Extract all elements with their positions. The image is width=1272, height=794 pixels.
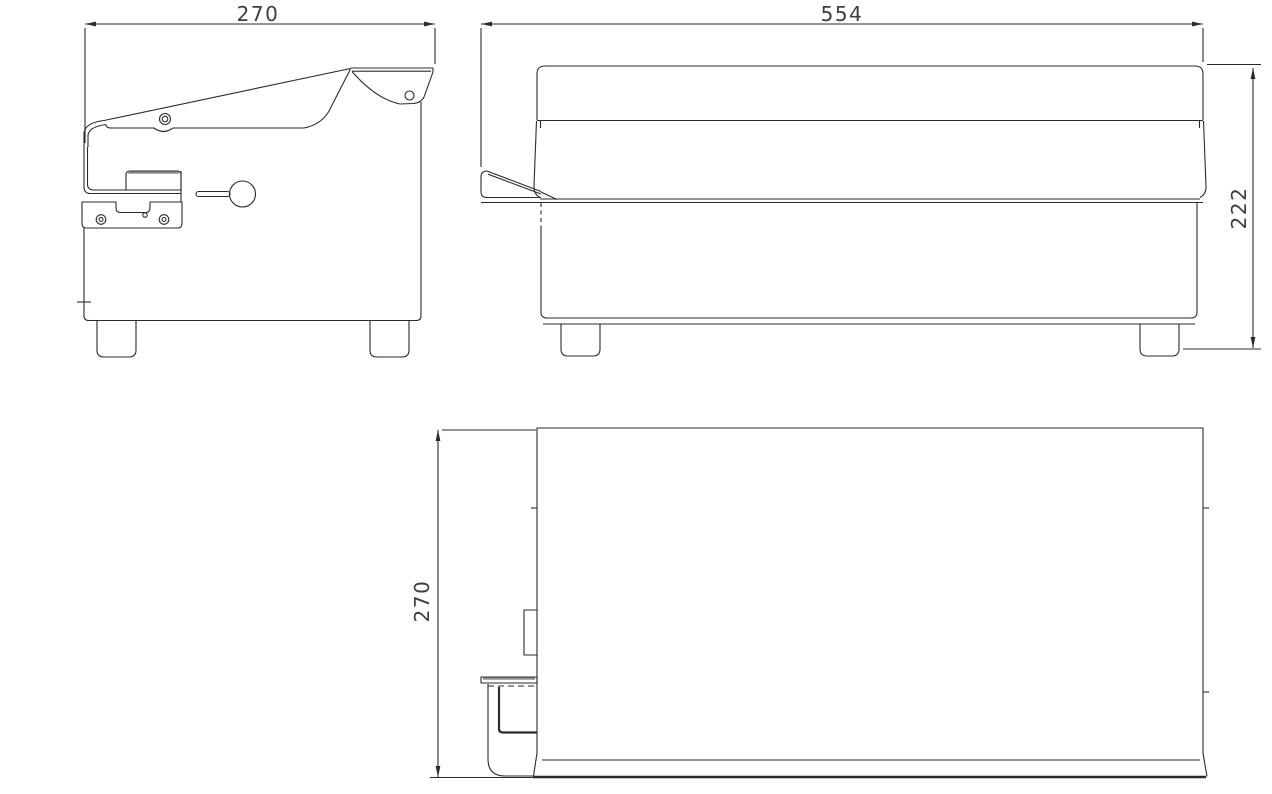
body-outline	[84, 102, 421, 321]
arrowhead-right-icon	[1192, 22, 1203, 27]
handle-knob	[230, 181, 256, 207]
drawing-sheet: 270	[0, 0, 1272, 794]
handle-bracket-arm	[487, 171, 541, 192]
screw-head	[96, 215, 106, 225]
arrowhead-up-icon	[1251, 68, 1256, 79]
pin-hole	[143, 213, 147, 217]
dimension-side-width: 270	[85, 2, 435, 143]
lid-lower-right-edge	[1200, 121, 1206, 198]
strip-right-edge	[1203, 753, 1207, 777]
arrowhead-right-icon	[424, 22, 435, 27]
mounting-plate	[82, 202, 182, 228]
foot	[1140, 324, 1179, 356]
side-notch	[524, 610, 537, 655]
technical-drawing-canvas: 270	[0, 0, 1272, 794]
body-outline	[541, 203, 1197, 318]
top-view: 270	[410, 428, 1209, 778]
screw-head-inner	[162, 116, 168, 122]
dimension-label: 270	[237, 2, 280, 26]
hinge-bracket-curve	[352, 72, 400, 105]
clamp-tab	[126, 171, 181, 190]
arrowhead-down-icon	[1251, 337, 1256, 348]
dimension-label: 270	[410, 580, 434, 623]
lid-lower-left-edge	[534, 121, 540, 198]
screw-head-inner	[162, 218, 166, 222]
arrowhead-down-icon	[436, 766, 441, 777]
lid-inner-corner	[88, 125, 106, 148]
tray-inner-wall	[499, 687, 537, 733]
foot	[561, 324, 600, 356]
lid-upper-box	[537, 66, 1203, 120]
screw-head	[160, 114, 171, 125]
lid-underside	[106, 69, 351, 132]
front-edge-outer	[84, 147, 181, 194]
arrowhead-left-icon	[481, 22, 492, 27]
arrowhead-left-icon	[85, 22, 96, 27]
handle-bracket-tail	[541, 192, 557, 200]
dimension-label: 554	[821, 2, 864, 26]
dimension-top-depth: 270	[410, 430, 542, 778]
handle-rod	[196, 192, 230, 197]
dimension-label: 222	[1227, 187, 1251, 230]
foot	[97, 321, 136, 357]
dimension-front-height: 222	[1183, 65, 1261, 350]
arrowhead-up-icon	[436, 430, 441, 441]
screw-head	[159, 215, 169, 225]
dimension-front-width: 554	[481, 2, 1203, 167]
hinge-hole	[405, 91, 414, 100]
strip-left-edge	[534, 753, 538, 776]
front-edge-inner	[88, 147, 182, 190]
tray-outer-wall	[488, 684, 534, 776]
front-view: 554 222	[481, 2, 1261, 356]
hinge-bracket-right	[400, 68, 433, 104]
body-outline	[537, 428, 1203, 753]
handle-bracket-arm-inner	[488, 174, 541, 194]
foot	[370, 321, 409, 357]
screw-head-inner	[99, 218, 103, 222]
side-view: 270	[77, 2, 435, 357]
lid-outline	[84, 69, 351, 148]
